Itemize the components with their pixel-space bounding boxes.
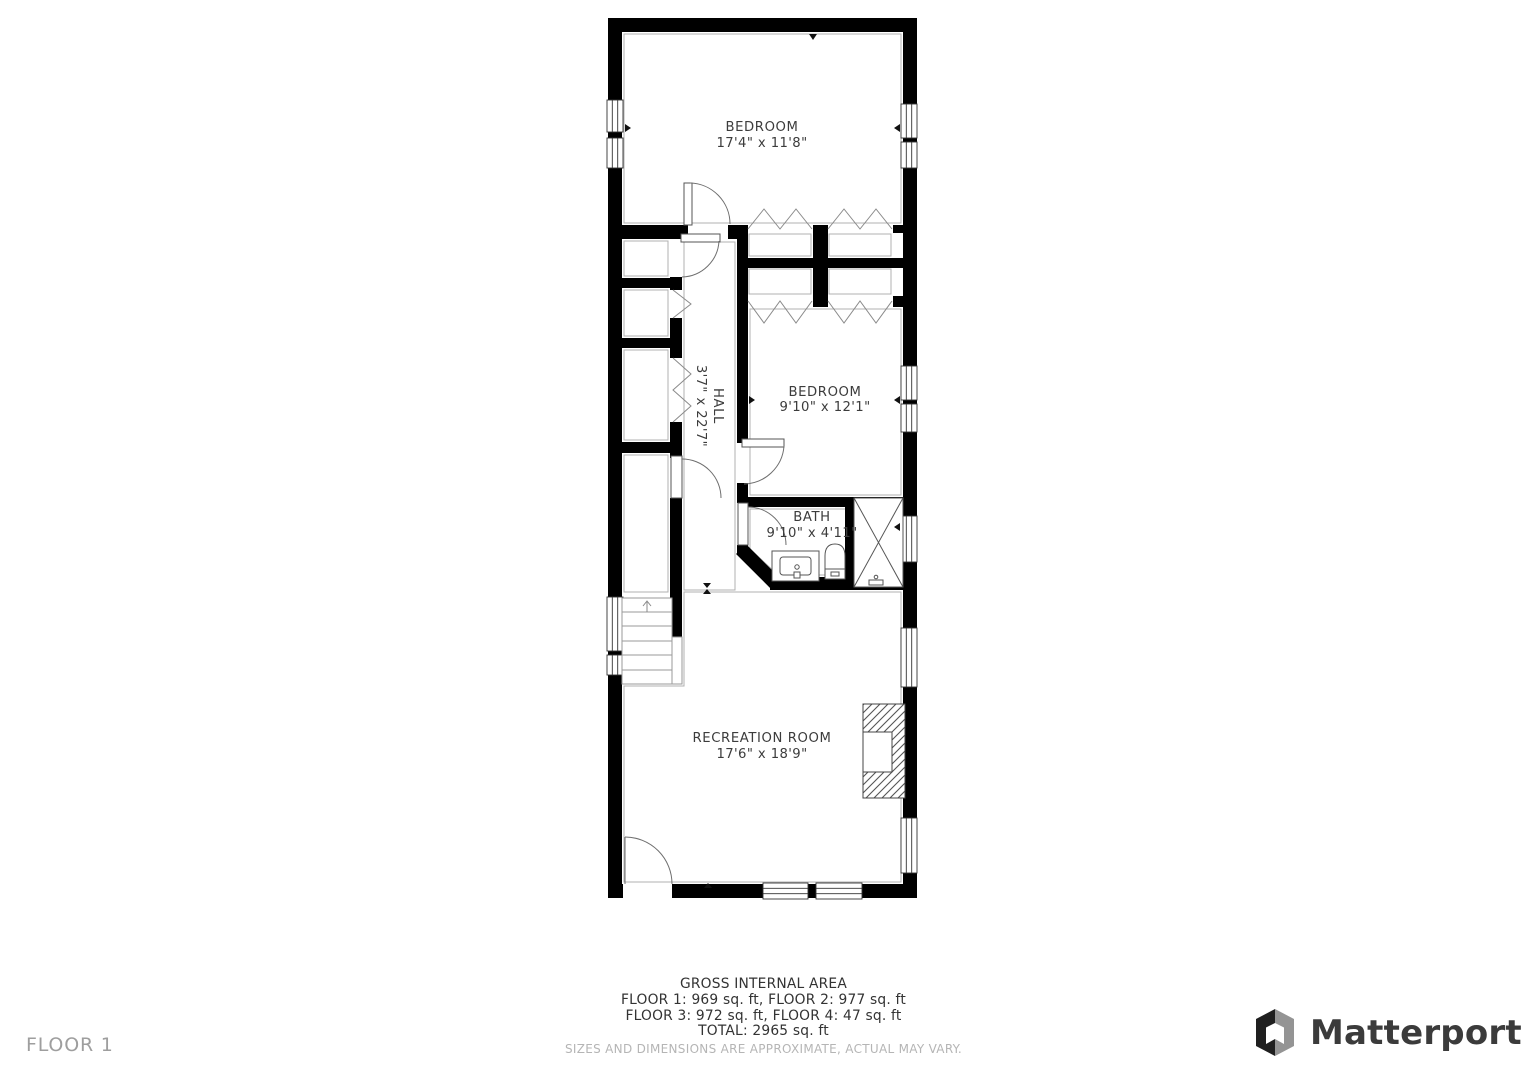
- dims-bedroom-1: 17'4" x 11'8": [716, 136, 807, 151]
- dims-recreation: 17'6" x 18'9": [716, 747, 807, 762]
- matterport-logo-icon: [1253, 1008, 1297, 1057]
- closet-cell: [829, 269, 891, 294]
- closet-room: [624, 350, 668, 440]
- floor-plan-page: BEDROOM 17'4" x 11'8" BEDROOM 9'10" x 12…: [0, 0, 1527, 1080]
- window: [901, 818, 917, 873]
- window: [607, 655, 623, 675]
- label-recreation: RECREATION ROOM: [693, 731, 832, 746]
- window: [763, 883, 808, 899]
- floor-plan: BEDROOM 17'4" x 11'8" BEDROOM 9'10" x 12…: [0, 0, 1527, 1080]
- label-bedroom-2: BEDROOM: [788, 385, 861, 400]
- gross-internal-area-title: GROSS INTERNAL AREA: [0, 977, 1527, 993]
- toilet-icon: [825, 544, 845, 579]
- window: [901, 104, 917, 138]
- window: [901, 142, 917, 168]
- label-hall: HALL: [710, 388, 725, 424]
- shower-icon: [854, 498, 903, 587]
- area-line-1: FLOOR 1: 969 sq. ft, FLOOR 2: 977 sq. ft: [0, 993, 1527, 1009]
- window: [901, 404, 917, 432]
- label-bedroom-1: BEDROOM: [725, 120, 798, 135]
- window: [901, 366, 917, 400]
- window: [607, 138, 623, 168]
- dims-bedroom-2: 9'10" x 12'1": [779, 400, 870, 415]
- stair-railing: [672, 637, 682, 684]
- window: [607, 100, 623, 132]
- fireplace: [863, 704, 905, 798]
- sink-icon: [772, 551, 819, 581]
- closet-cell: [749, 269, 811, 294]
- window: [607, 597, 623, 651]
- matterport-wordmark: Matterport: [1310, 1013, 1522, 1053]
- window: [901, 628, 917, 687]
- dims-hall: 3'7" x 22'7": [693, 365, 708, 447]
- room-hall: [684, 242, 735, 590]
- window: [816, 883, 862, 899]
- floor-label: FLOOR 1: [26, 1034, 114, 1056]
- closet-cell: [749, 234, 811, 256]
- matterport-branding: Matterport: [1253, 1008, 1522, 1057]
- closet-room: [624, 455, 668, 592]
- closet-room: [624, 290, 668, 336]
- dims-bath: 9'10" x 4'11": [766, 526, 857, 541]
- closet-cell: [829, 234, 891, 256]
- closet-room: [624, 241, 668, 276]
- label-bath: BATH: [793, 510, 830, 525]
